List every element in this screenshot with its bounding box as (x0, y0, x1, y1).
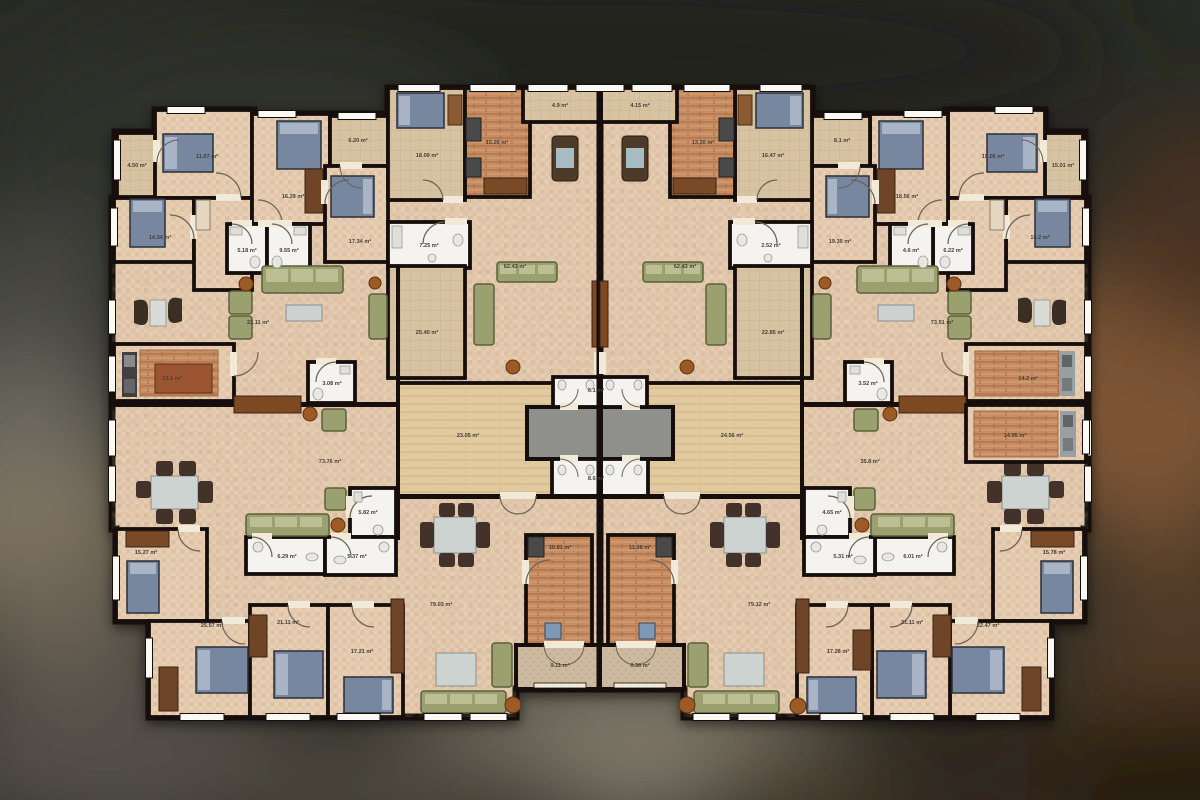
svg-text:17.21 m²: 17.21 m² (351, 648, 374, 655)
svg-text:13.1 m²: 13.1 m² (162, 375, 181, 382)
svg-text:22.85 m²: 22.85 m² (762, 329, 785, 336)
svg-text:3.52 m²: 3.52 m² (858, 380, 877, 387)
svg-text:6.29 m²: 6.29 m² (277, 553, 296, 560)
svg-text:14.34 m²: 14.34 m² (149, 234, 172, 241)
svg-text:5.18 m²: 5.18 m² (237, 247, 256, 254)
svg-text:4.15 m²: 4.15 m² (630, 102, 649, 109)
svg-text:35.8 m²: 35.8 m² (860, 458, 879, 465)
svg-text:22.11 m²: 22.11 m² (247, 319, 269, 326)
svg-text:15.05 m²: 15.05 m² (982, 153, 1005, 160)
svg-text:6.01 m²: 6.01 m² (903, 553, 922, 560)
svg-text:11.07 m²: 11.07 m² (196, 153, 218, 160)
svg-text:6.20 m²: 6.20 m² (348, 137, 367, 144)
svg-text:9.36 m²: 9.36 m² (630, 662, 649, 669)
svg-text:17.28 m²: 17.28 m² (827, 648, 850, 655)
svg-text:18.56 m²: 18.56 m² (896, 193, 919, 200)
svg-text:8.6 m²: 8.6 m² (588, 475, 604, 482)
svg-text:17.34 m²: 17.34 m² (349, 238, 372, 245)
svg-text:5.37 m²: 5.37 m² (347, 553, 366, 560)
svg-text:3.08 m²: 3.08 m² (322, 380, 341, 387)
svg-text:7.25 m²: 7.25 m² (419, 242, 438, 249)
svg-text:8.1 m²: 8.1 m² (834, 137, 850, 144)
svg-text:73.76 m²: 73.76 m² (319, 458, 342, 465)
svg-text:4.9 m²: 4.9 m² (552, 102, 568, 109)
svg-text:21.11 m²: 21.11 m² (901, 619, 923, 626)
svg-text:6.1 m²: 6.1 m² (588, 387, 604, 394)
svg-text:15.2 m²: 15.2 m² (1030, 234, 1049, 241)
svg-text:24.56 m²: 24.56 m² (721, 432, 744, 439)
svg-text:5.31 m²: 5.31 m² (833, 553, 852, 560)
svg-text:4.50 m²: 4.50 m² (127, 162, 146, 169)
svg-text:16.29 m²: 16.29 m² (282, 193, 305, 200)
svg-text:18.09 m²: 18.09 m² (416, 152, 439, 159)
svg-text:6.22 m²: 6.22 m² (943, 247, 962, 254)
svg-text:13.20 m²: 13.20 m² (692, 139, 715, 146)
svg-text:25.57 m²: 25.57 m² (201, 622, 224, 629)
svg-text:79.03 m²: 79.03 m² (430, 601, 453, 608)
svg-text:15.01 m²: 15.01 m² (1052, 162, 1075, 169)
svg-text:79.12 m²: 79.12 m² (748, 601, 771, 608)
svg-text:73.51 m²: 73.51 m² (931, 319, 954, 326)
svg-text:14.2 m²: 14.2 m² (1018, 375, 1037, 382)
svg-text:10.81 m²: 10.81 m² (549, 544, 572, 551)
svg-text:15.78 m²: 15.78 m² (1043, 549, 1066, 556)
svg-text:14.95 m²: 14.95 m² (1004, 432, 1027, 439)
svg-text:11.08 m²: 11.08 m² (629, 544, 651, 551)
svg-text:4.65 m²: 4.65 m² (822, 509, 841, 516)
svg-text:9.55 m²: 9.55 m² (279, 247, 298, 254)
svg-text:5.82 m²: 5.82 m² (358, 509, 377, 516)
svg-text:25.40 m²: 25.40 m² (416, 329, 439, 336)
svg-text:15.26 m²: 15.26 m² (486, 139, 509, 146)
svg-text:4.6 m²: 4.6 m² (903, 247, 919, 254)
svg-text:23.05 m²: 23.05 m² (457, 432, 480, 439)
svg-text:2.52 m²: 2.52 m² (761, 242, 780, 249)
svg-text:21.11 m²: 21.11 m² (277, 619, 299, 626)
svg-text:22.47 m²: 22.47 m² (977, 622, 1000, 629)
svg-text:62.43 m²: 62.43 m² (674, 263, 697, 270)
svg-text:19.30 m²: 19.30 m² (829, 238, 852, 245)
svg-text:15.27 m²: 15.27 m² (135, 549, 158, 556)
svg-text:16.47 m²: 16.47 m² (762, 152, 785, 159)
svg-text:9.11 m²: 9.11 m² (551, 662, 570, 669)
svg-text:62.43 m²: 62.43 m² (504, 263, 527, 270)
